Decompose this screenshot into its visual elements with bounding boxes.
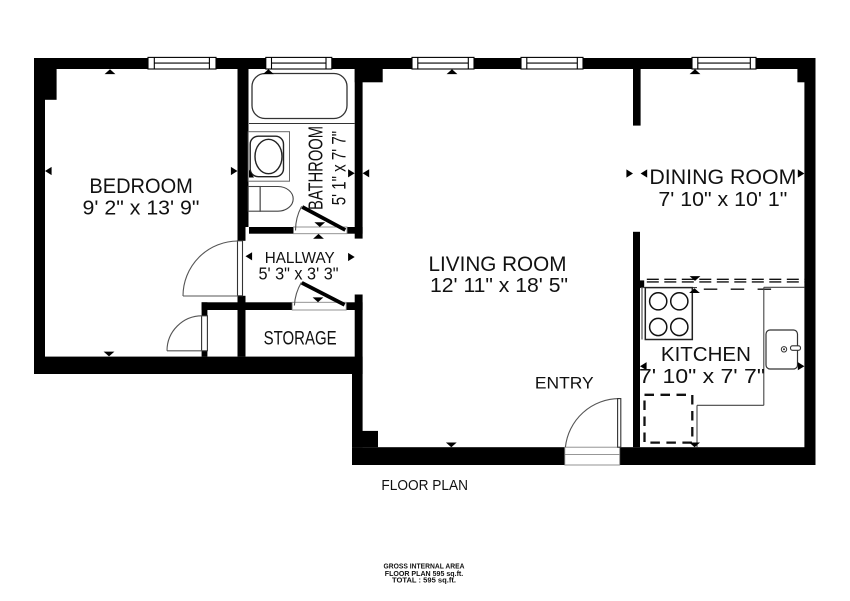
svg-text:BATHROOM: BATHROOM: [306, 126, 328, 210]
svg-text:ENTRY: ENTRY: [535, 373, 594, 392]
svg-text:FLOOR PLAN: FLOOR PLAN: [381, 477, 468, 494]
svg-text:KITCHEN: KITCHEN: [661, 344, 751, 366]
svg-text:7' 10" x 7' 7": 7' 10" x 7' 7": [639, 366, 765, 388]
svg-text:7' 10" x 10' 1": 7' 10" x 10' 1": [658, 188, 787, 211]
svg-text:GROSS INTERNAL AREA: GROSS INTERNAL AREA: [384, 564, 465, 571]
svg-text:STORAGE: STORAGE: [264, 329, 337, 350]
svg-text:LIVING ROOM: LIVING ROOM: [429, 253, 567, 276]
svg-text:TOTAL : 595 sq.ft.: TOTAL : 595 sq.ft.: [392, 578, 456, 585]
svg-text:5' 1" x 7' 7": 5' 1" x 7' 7": [329, 131, 351, 205]
svg-text:DINING ROOM: DINING ROOM: [649, 164, 796, 189]
svg-text:9' 2" x 13' 9": 9' 2" x 13' 9": [83, 198, 200, 220]
svg-text:12' 11" x 18' 5": 12' 11" x 18' 5": [430, 275, 568, 297]
svg-text:5' 3" x 3' 3": 5' 3" x 3' 3": [259, 264, 339, 284]
svg-text:BEDROOM: BEDROOM: [89, 175, 193, 198]
